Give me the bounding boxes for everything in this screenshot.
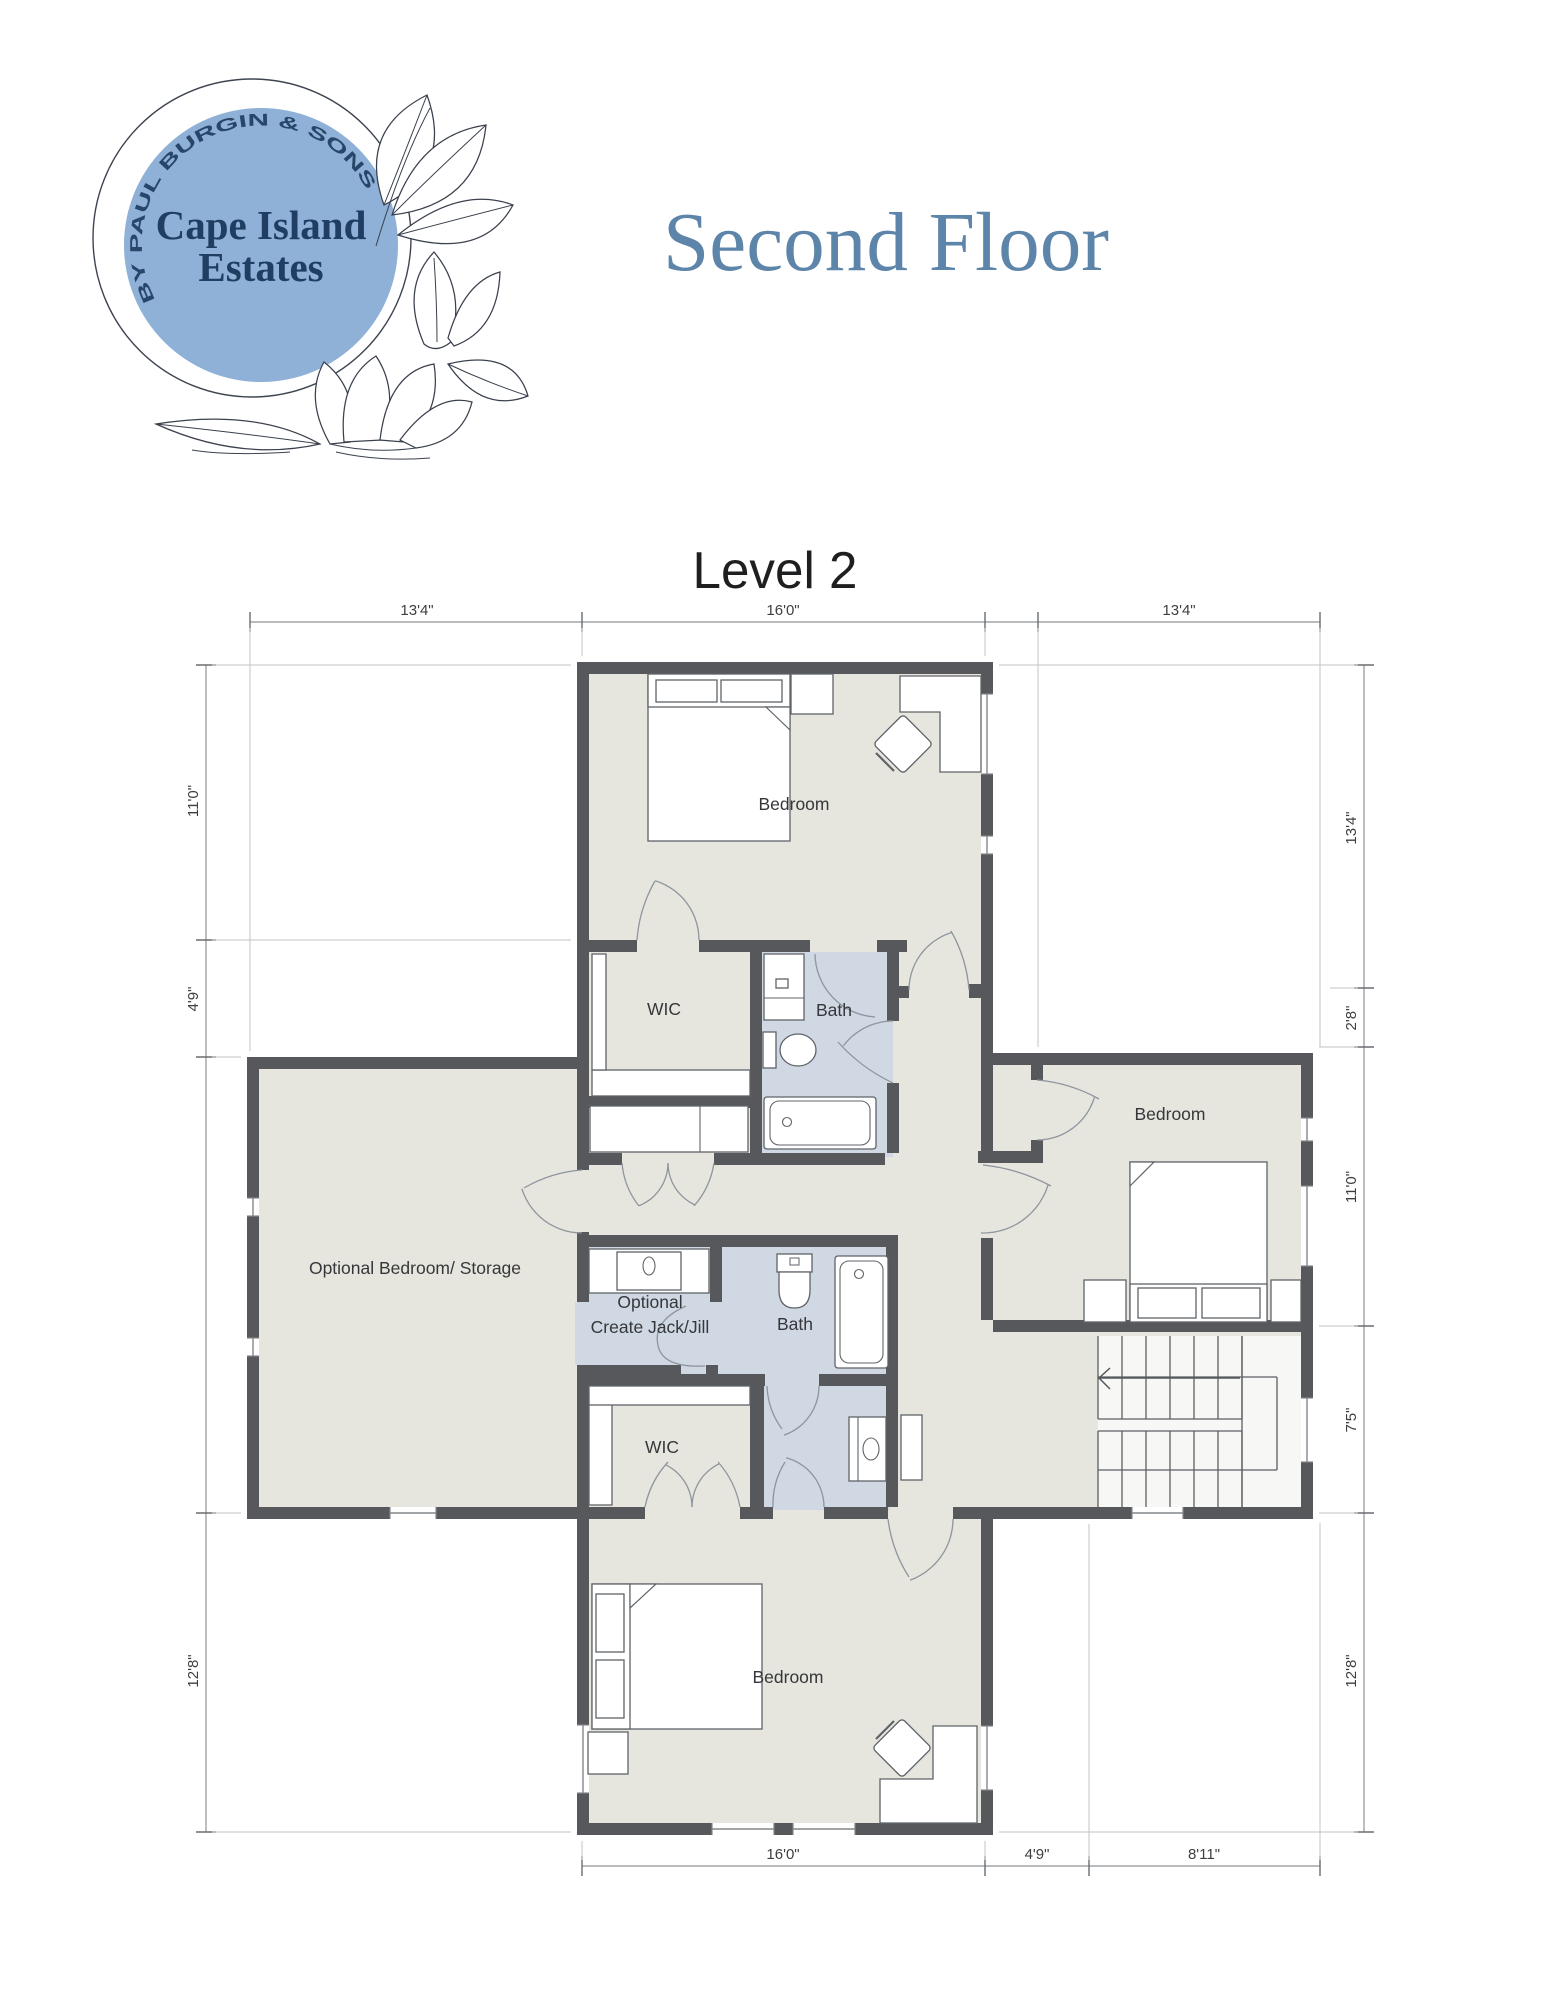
svg-text:16'0": 16'0" bbox=[766, 1846, 799, 1863]
svg-text:Bath: Bath bbox=[816, 1000, 852, 1020]
svg-text:12'8": 12'8" bbox=[1343, 1654, 1360, 1687]
svg-text:11'0": 11'0" bbox=[1343, 1171, 1360, 1203]
svg-text:12'8": 12'8" bbox=[185, 1654, 202, 1687]
svg-text:13'4": 13'4" bbox=[1343, 811, 1360, 844]
svg-text:4'9": 4'9" bbox=[185, 987, 202, 1012]
svg-text:Bath: Bath bbox=[777, 1314, 813, 1334]
svg-text:Second Floor: Second Floor bbox=[663, 196, 1109, 289]
svg-text:Bedroom: Bedroom bbox=[758, 794, 829, 814]
svg-text:WIC: WIC bbox=[647, 999, 681, 1019]
svg-text:Optional Bedroom/ Storage: Optional Bedroom/ Storage bbox=[309, 1258, 521, 1278]
svg-text:Bedroom: Bedroom bbox=[752, 1667, 823, 1687]
svg-text:Estates: Estates bbox=[198, 244, 323, 290]
svg-text:2'8": 2'8" bbox=[1343, 1006, 1360, 1031]
svg-text:Level 2: Level 2 bbox=[693, 542, 858, 600]
svg-text:WIC: WIC bbox=[645, 1437, 679, 1457]
svg-text:13'4": 13'4" bbox=[400, 602, 433, 619]
svg-text:16'0": 16'0" bbox=[766, 602, 799, 619]
svg-text:Bedroom: Bedroom bbox=[1134, 1104, 1205, 1124]
svg-text:7'5": 7'5" bbox=[1343, 1408, 1360, 1433]
svg-text:Optional: Optional bbox=[617, 1292, 682, 1312]
svg-text:11'0": 11'0" bbox=[185, 785, 202, 817]
svg-text:13'4": 13'4" bbox=[1162, 602, 1195, 619]
svg-text:Cape Island: Cape Island bbox=[156, 202, 367, 248]
svg-text:8'11": 8'11" bbox=[1188, 1846, 1220, 1863]
svg-text:Create Jack/Jill: Create Jack/Jill bbox=[591, 1317, 710, 1337]
svg-text:4'9": 4'9" bbox=[1025, 1846, 1050, 1863]
